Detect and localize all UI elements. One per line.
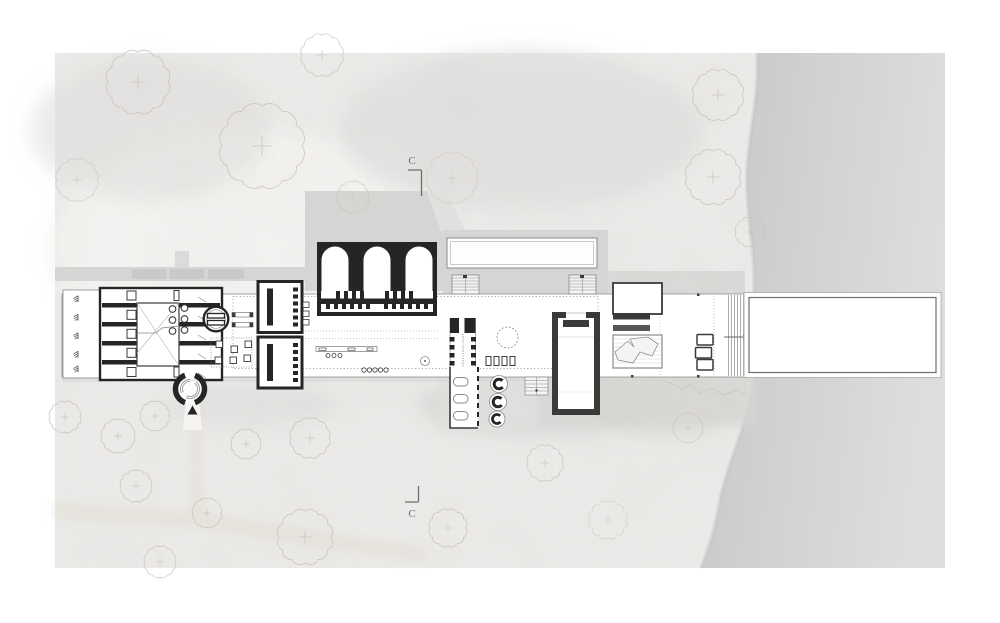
pavilion-stair-right	[569, 275, 596, 294]
section-label-bottom: C	[408, 508, 415, 520]
sauna-building-1	[258, 282, 302, 333]
dark-hall-building	[552, 312, 600, 415]
sauna-building-2	[258, 337, 302, 388]
hall-stair	[525, 377, 548, 395]
spiral-stairs	[489, 376, 508, 428]
service-boxes	[303, 302, 309, 325]
spiral-stair	[489, 411, 505, 427]
sun-loungers	[696, 335, 714, 371]
swimming-pool	[744, 293, 941, 378]
hall-bench	[563, 320, 589, 327]
spiral-stair	[490, 394, 507, 411]
left-annex	[63, 290, 100, 378]
arched-spa-building	[317, 242, 437, 316]
rock-garden-room	[613, 335, 662, 368]
site-plan-canvas: C C	[0, 0, 1000, 623]
site-plan-sheet: C C	[0, 0, 1000, 623]
round-bar	[204, 307, 229, 332]
section-label-top: C	[408, 155, 415, 167]
spiral-stair	[491, 376, 508, 393]
pavilion-stair-left	[452, 275, 479, 294]
bath-tubs	[454, 378, 469, 421]
